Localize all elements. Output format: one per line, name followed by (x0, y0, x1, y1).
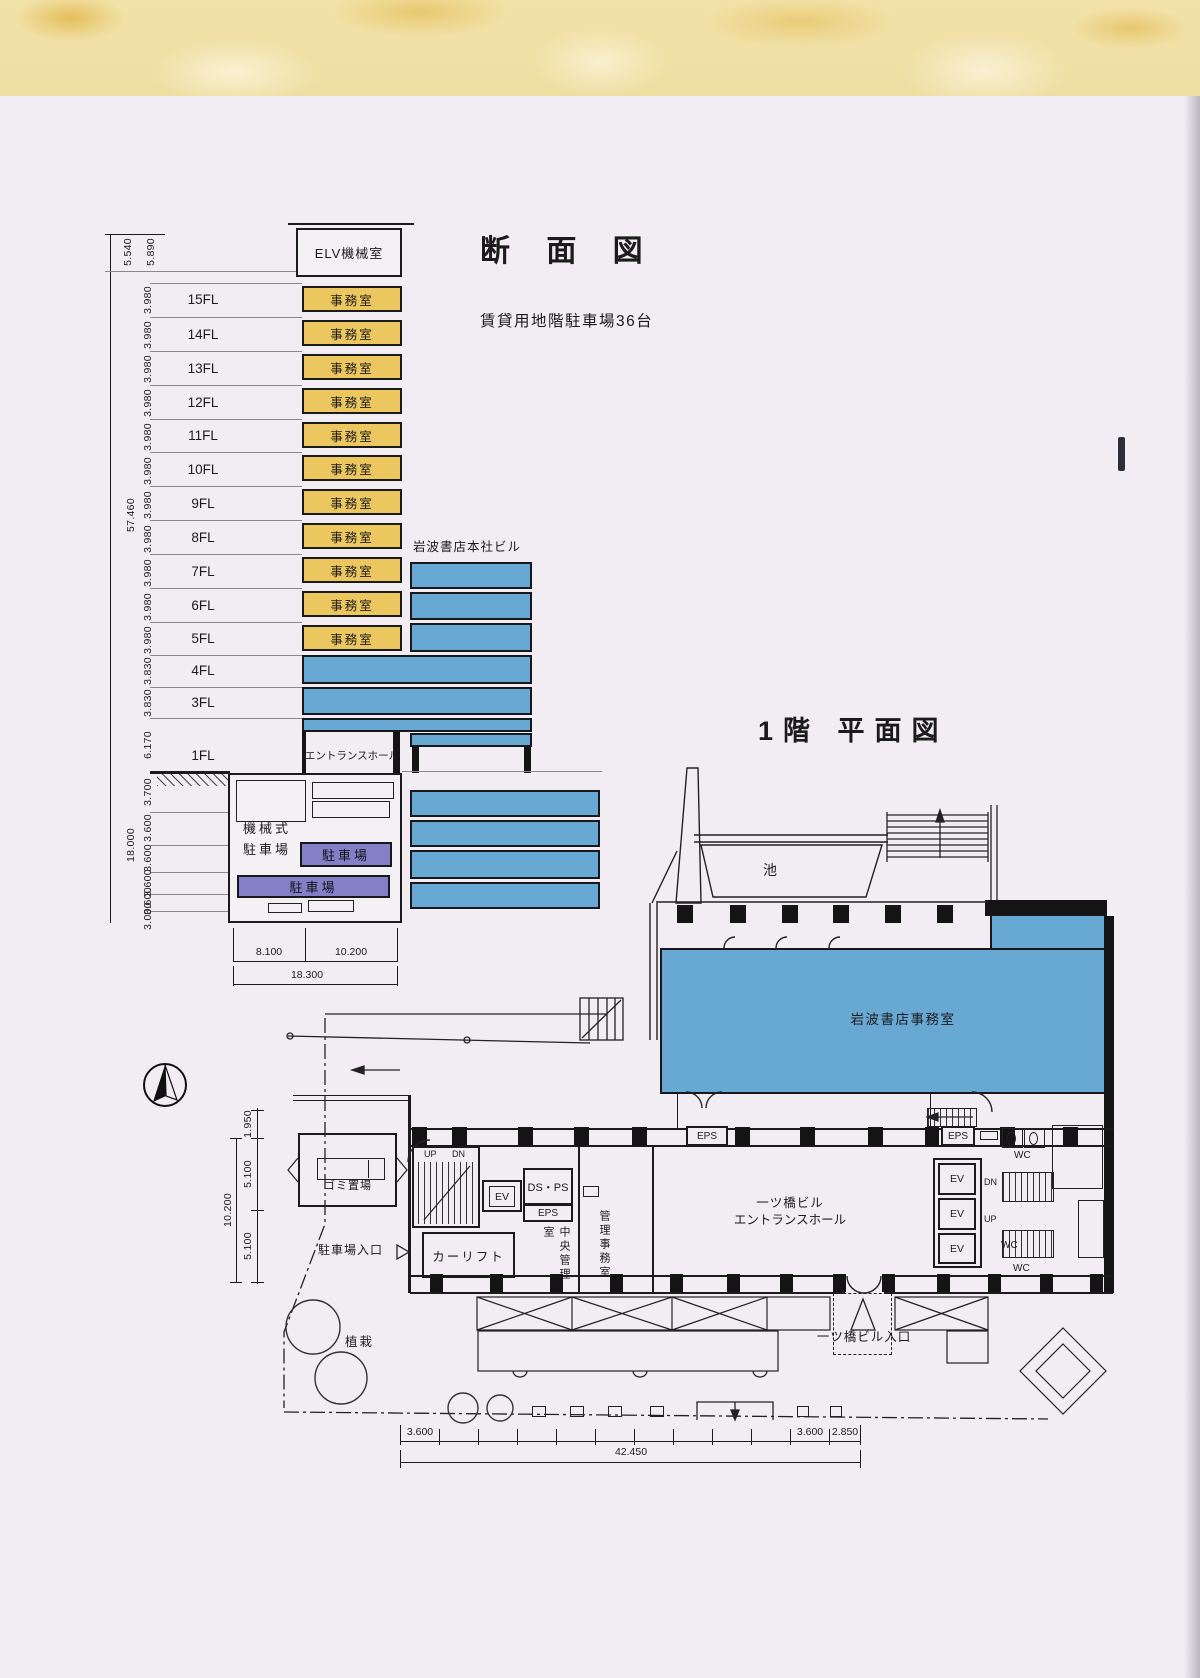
north-compass (144, 1064, 186, 1106)
plan-linework-overlay (0, 0, 1200, 1678)
canopy-x-bracing (477, 1297, 1106, 1414)
misc-linework (288, 1113, 973, 1220)
pond-stairs (887, 805, 997, 900)
door-swing-arcs (408, 937, 992, 1293)
pond-and-site-outline (650, 768, 988, 1040)
site-boundary-line (284, 1018, 1048, 1419)
parking-entrance-arrow (397, 1245, 409, 1259)
planting-trees (286, 1300, 513, 1423)
driveway-linework (287, 998, 623, 1074)
street-bench (697, 1402, 773, 1420)
entrance-triangle (397, 1245, 875, 1330)
scanned-drawing-sheet: 断 面 図 賃貸用地階駐車場36台 5.540 5.890 57.460 18.… (0, 0, 1200, 1678)
